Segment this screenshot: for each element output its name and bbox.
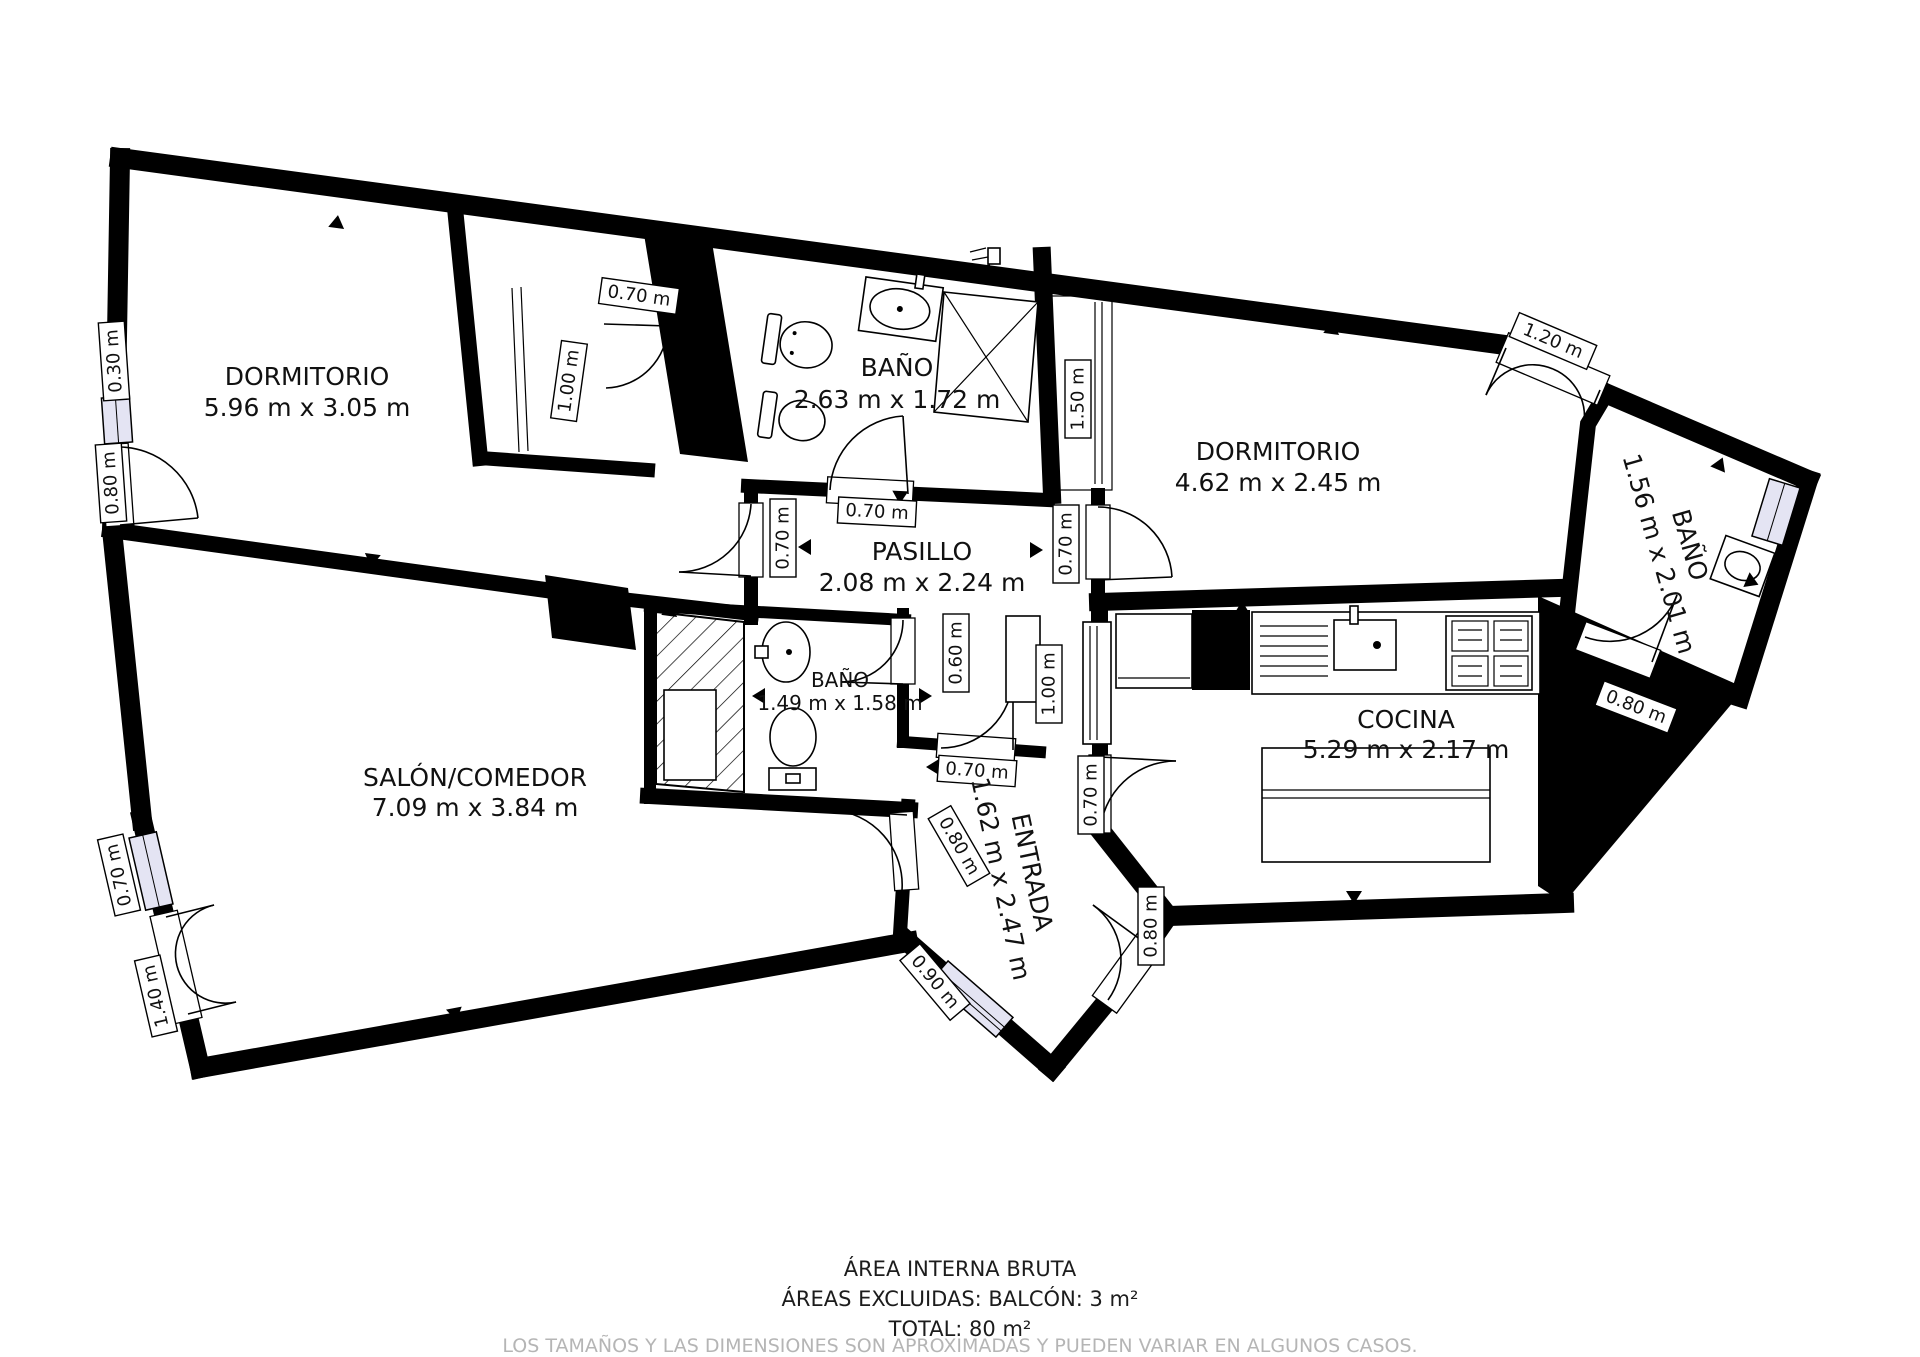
dim-door-left-080: 0.80 m bbox=[95, 443, 126, 523]
room-label-bano-derecho: BAÑO 1.56 m x 2.01 m bbox=[1617, 441, 1734, 657]
svg-text:2.08 m x 2.24 m: 2.08 m x 2.24 m bbox=[819, 568, 1026, 597]
wall-kitchen-top bbox=[1098, 588, 1558, 602]
wall-entry-lower bbox=[1052, 1000, 1108, 1068]
kitchen-column bbox=[1192, 610, 1250, 690]
floor-plan-page: 0.70 m 1.00 m 0.30 m 0.80 m 0.70 m 1.50 … bbox=[0, 0, 1920, 1357]
kitchen-stove bbox=[1446, 616, 1532, 690]
door-gap-pasillo-salon bbox=[739, 503, 763, 577]
door-closet1 bbox=[604, 324, 668, 388]
footer-area-interna: ÁREA INTERNA BRUTA bbox=[844, 1256, 1077, 1281]
pasillo-opening-leaf bbox=[1006, 616, 1040, 702]
svg-text:0.30 m: 0.30 m bbox=[101, 329, 126, 394]
svg-text:BAÑO: BAÑO bbox=[861, 352, 934, 382]
svg-text:7.09 m x 3.84 m: 7.09 m x 3.84 m bbox=[372, 793, 579, 822]
wall-bano1-left-block bbox=[642, 222, 748, 462]
svg-text:SALÓN/COMEDOR: SALÓN/COMEDOR bbox=[363, 762, 587, 792]
wall-dorm1-closet bbox=[455, 208, 480, 458]
svg-text:BAÑO: BAÑO bbox=[811, 668, 869, 692]
dim-pasillo-opening: 0.60 m bbox=[943, 614, 969, 692]
dim-pasillo-salon-door: 0.70 m bbox=[770, 499, 796, 577]
svg-text:5.29 m x 2.17 m: 5.29 m x 2.17 m bbox=[1303, 735, 1510, 764]
svg-text:DORMITORIO: DORMITORIO bbox=[1196, 437, 1361, 466]
dim-closet1-depth: 1.00 m bbox=[551, 341, 588, 422]
kitchen-counter bbox=[1252, 606, 1540, 694]
room-label-dormitorio-2: DORMITORIO 4.62 m x 2.45 m bbox=[1175, 437, 1382, 497]
wall-bano2-left bbox=[1566, 392, 1607, 622]
kitchen-table bbox=[1262, 748, 1490, 862]
toilet-bano1 bbox=[761, 313, 835, 372]
closet-dorm1 bbox=[512, 287, 528, 452]
svg-text:2.63 m x 1.72 m: 2.63 m x 1.72 m bbox=[794, 385, 1001, 414]
wall-closet1-bottom bbox=[480, 458, 648, 470]
dim-bano1-door: 0.70 m bbox=[837, 497, 916, 527]
svg-text:5.96 m x 3.05 m: 5.96 m x 3.05 m bbox=[204, 393, 411, 422]
footer: ÁREA INTERNA BRUTA ÁREAS EXCLUIDAS: BALC… bbox=[502, 1256, 1417, 1357]
wall-bano3-bottom bbox=[648, 796, 910, 810]
svg-text:0.70 m: 0.70 m bbox=[1081, 763, 1102, 826]
dim-closet2: 1.50 m bbox=[1065, 360, 1091, 438]
footer-disclaimer: LOS TAMAÑOS Y LAS DIMENSIONES SON APROXI… bbox=[502, 1334, 1417, 1357]
room-label-pasillo: PASILLO 2.08 m x 2.24 m bbox=[819, 537, 1026, 597]
svg-text:0.70 m: 0.70 m bbox=[845, 500, 909, 524]
dim-window-030: 0.30 m bbox=[98, 321, 129, 401]
svg-text:DORMITORIO: DORMITORIO bbox=[225, 362, 390, 391]
wall-dorm1-salon bbox=[110, 530, 560, 592]
dim-entrada-closet: 1.00 m bbox=[1036, 645, 1062, 723]
svg-text:1.49 m x 1.58 m: 1.49 m x 1.58 m bbox=[757, 691, 922, 715]
svg-text:0.80 m: 0.80 m bbox=[1141, 894, 1162, 957]
svg-text:1.50 m: 1.50 m bbox=[1068, 367, 1089, 430]
svg-text:PASILLO: PASILLO bbox=[872, 537, 972, 566]
svg-text:4.62 m x 2.45 m: 4.62 m x 2.45 m bbox=[1175, 468, 1382, 497]
svg-text:1.00 m: 1.00 m bbox=[1039, 652, 1060, 715]
svg-text:0.60 m: 0.60 m bbox=[946, 621, 967, 684]
footer-areas-excluidas: ÁREAS EXCLUIDAS: BALCÓN: 3 m² bbox=[782, 1286, 1139, 1311]
dim-entry-door: 0.80 m bbox=[1138, 887, 1164, 965]
wall-kitchen-bottom bbox=[1168, 903, 1564, 916]
floor-plan-svg: 0.70 m 1.00 m 0.30 m 0.80 m 0.70 m 1.50 … bbox=[0, 0, 1920, 1357]
svg-text:COCINA: COCINA bbox=[1357, 705, 1455, 734]
svg-text:0.70 m: 0.70 m bbox=[773, 506, 794, 569]
kitchen-fridge bbox=[1116, 614, 1192, 688]
closet-entrada bbox=[1083, 622, 1111, 744]
toilet-bano3 bbox=[769, 708, 816, 790]
door-gap-dorm2 bbox=[1086, 505, 1110, 579]
dim-cocina-door: 0.70 m bbox=[1078, 756, 1104, 834]
room-label-cocina: COCINA 5.29 m x 2.17 m bbox=[1303, 705, 1510, 764]
wall-salon-bottom bbox=[200, 942, 908, 1068]
shaft-hatched bbox=[656, 612, 744, 792]
wall-right-junction bbox=[1538, 596, 1745, 903]
room-label-dormitorio-1: DORMITORIO 5.96 m x 3.05 m bbox=[204, 362, 411, 422]
wall-bano1-dorm2 bbox=[1042, 256, 1052, 495]
window-dorm1-left bbox=[101, 396, 132, 444]
svg-text:0.80 m: 0.80 m bbox=[98, 451, 123, 516]
dim-dorm2-door: 0.70 m bbox=[1053, 505, 1079, 583]
svg-text:0.70 m: 0.70 m bbox=[1056, 512, 1077, 575]
room-label-salon-comedor: SALÓN/COMEDOR 7.09 m x 3.84 m bbox=[363, 762, 587, 822]
sink-bano3 bbox=[755, 622, 810, 682]
sink-bano1 bbox=[858, 267, 944, 341]
wall-top bbox=[120, 158, 1505, 345]
